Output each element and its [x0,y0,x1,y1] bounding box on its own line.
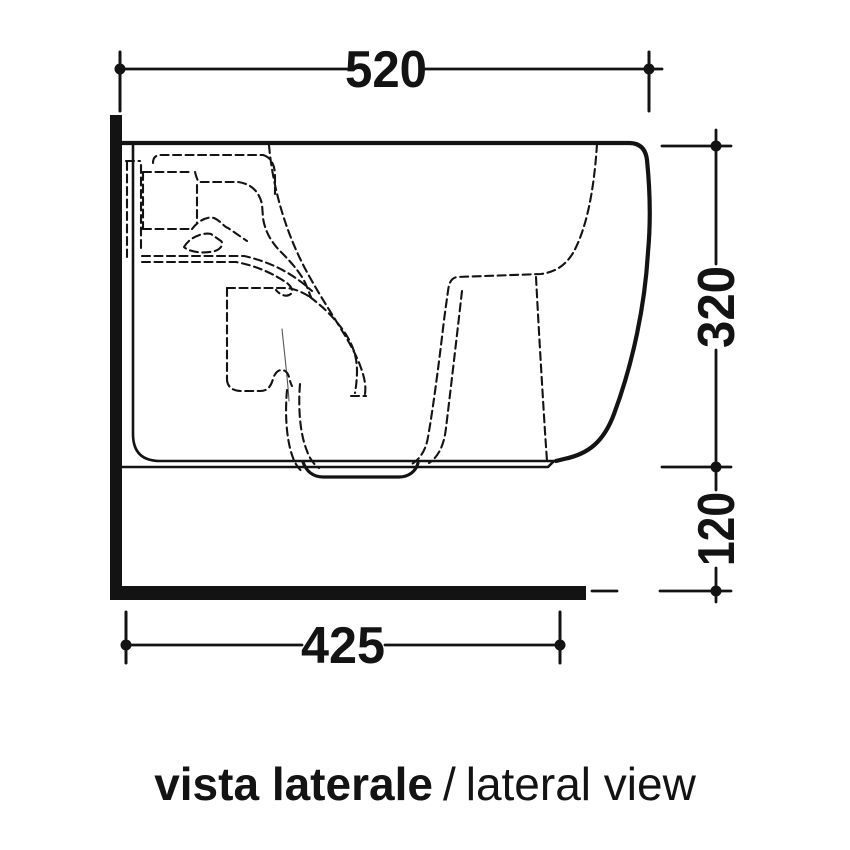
dim-dot [555,640,566,651]
dim-dot [121,640,132,651]
dimension-height-body: 320 [662,130,746,490]
sweep-lower [142,262,292,296]
wall-section [110,115,122,600]
floor-section [110,586,586,600]
valve-seat-bump [192,218,247,241]
trap-box-bottom [227,370,292,391]
caption-divider: / [443,758,456,810]
valve-top [153,155,263,163]
flush-gasket [184,234,222,253]
bowl-rim-outer [412,144,597,464]
dim-label-120: 120 [688,492,746,566]
caption-english: lateral view [466,758,696,810]
internal-hidden-lines [126,144,597,472]
dim-label-425: 425 [301,617,385,675]
dim-label-520: 520 [345,41,427,99]
lateral-view-diagram: 520 320 120 425 [0,0,850,850]
dim-dot [711,141,722,152]
caption: vista laterale/lateral view [0,757,850,811]
trap-outlet-right [299,384,319,468]
dimension-depth-bottom: 425 [121,612,566,675]
technical-drawing-page: 520 320 120 425 [0,0,850,850]
dimension-height-floor-gap: 120 [592,492,746,602]
dim-dot [711,462,722,473]
toilet-outline [122,143,650,477]
bowl-back-wall [536,277,547,461]
dim-label-320: 320 [688,266,746,348]
caption-italian: vista laterale [154,758,433,810]
dim-dot [644,64,655,75]
dim-dot [711,586,722,597]
trap-box-top [227,288,310,297]
dim-dot [115,64,126,75]
dimension-depth-top: 520 [115,41,663,111]
